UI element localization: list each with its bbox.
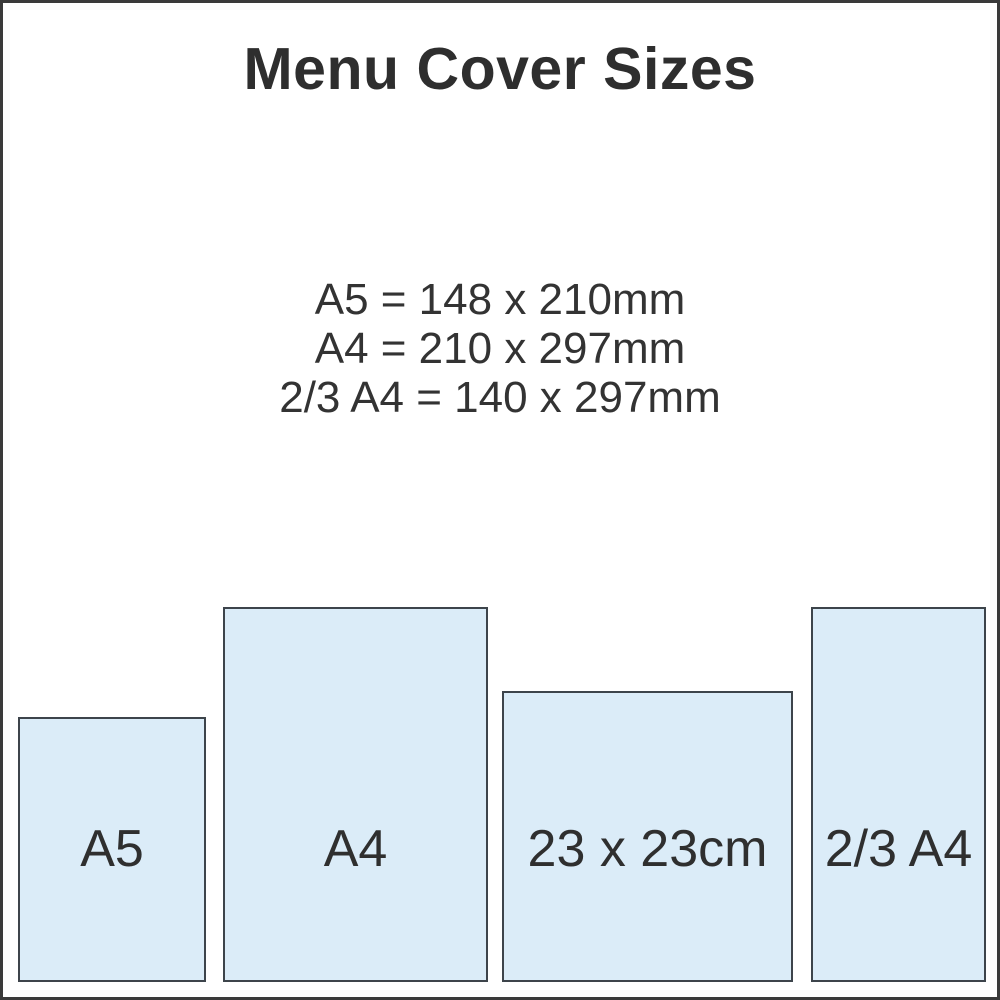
size-panel-twothird-a4-label: 2/3 A4 bbox=[813, 823, 984, 875]
menu-cover-sizes-diagram: Menu Cover Sizes A5 = 148 x 210mm A4 = 2… bbox=[0, 0, 1000, 1000]
page-title: Menu Cover Sizes bbox=[3, 37, 997, 101]
size-panel-a5-label: A5 bbox=[20, 823, 204, 875]
size-spec-list: A5 = 148 x 210mm A4 = 210 x 297mm 2/3 A4… bbox=[3, 275, 997, 422]
spec-line-twothird-a4: 2/3 A4 = 140 x 297mm bbox=[3, 373, 997, 422]
size-panel-23x23cm-label: 23 x 23cm bbox=[504, 823, 791, 875]
size-panel-a4-label: A4 bbox=[225, 823, 486, 875]
spec-line-a4: A4 = 210 x 297mm bbox=[3, 324, 997, 373]
size-panel-twothird-a4: 2/3 A4 bbox=[811, 607, 986, 982]
size-panel-a4: A4 bbox=[223, 607, 488, 982]
size-panel-a5: A5 bbox=[18, 717, 206, 982]
size-panel-23x23cm: 23 x 23cm bbox=[502, 691, 793, 982]
spec-line-a5: A5 = 148 x 210mm bbox=[3, 275, 997, 324]
